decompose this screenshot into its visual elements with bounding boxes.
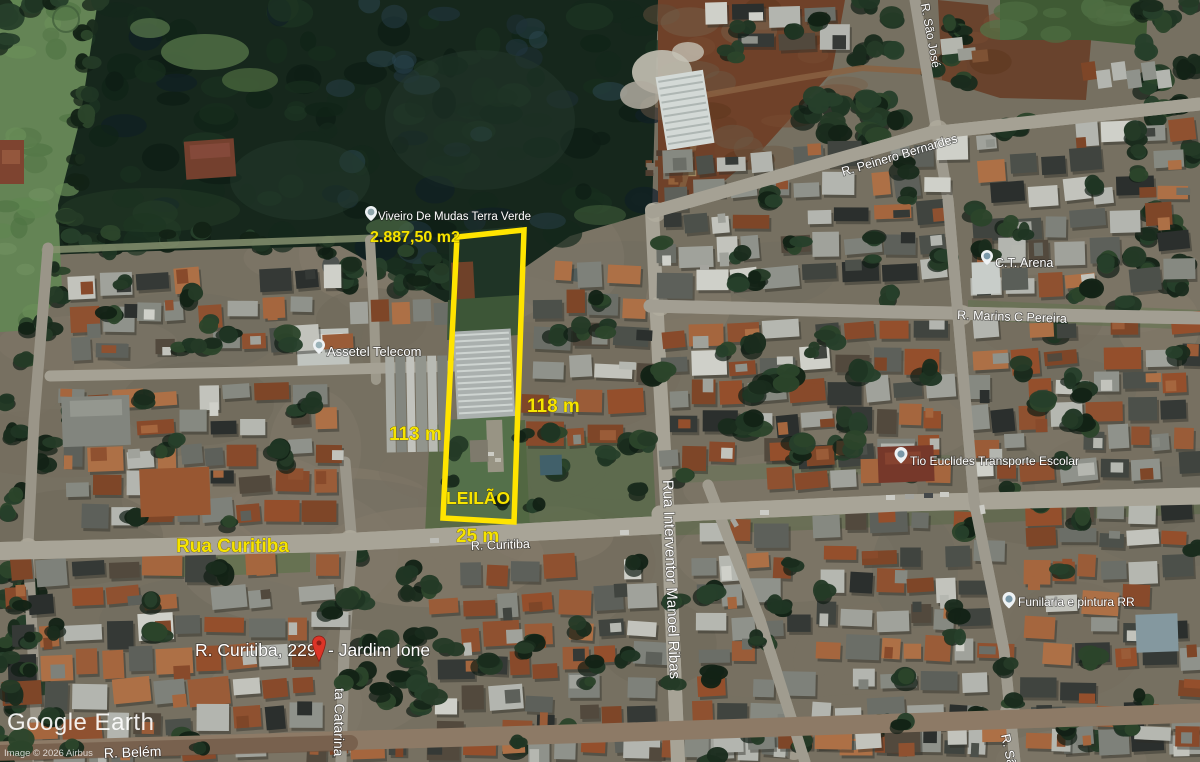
svg-text:118 m: 118 m [527,396,580,417]
svg-text:R. Belém: R. Belém [104,743,162,761]
svg-text:113 m: 113 m [389,424,442,445]
svg-text:ta Catarina: ta Catarina [331,688,348,757]
svg-text:Viveiro De Mudas Terra Verde: Viveiro De Mudas Terra Verde [378,211,531,223]
svg-text:- Jardim Ione: - Jardim Ione [328,640,430,660]
svg-text:R. Curitiba: R. Curitiba [471,537,531,553]
svg-text:Rua Curitiba: Rua Curitiba [176,536,289,557]
svg-text:LEILÃO: LEILÃO [446,487,510,508]
svg-text:Image © 2026 Airbus: Image © 2026 Airbus [4,748,93,759]
svg-text:Assetel Telecom: Assetel Telecom [327,344,421,359]
svg-text:Funilaria e pintura RR: Funilaria e pintura RR [1018,595,1135,609]
svg-text:Tio Euclides Transporte Escola: Tio Euclides Transporte Escolar [910,454,1079,468]
svg-text:2.887,50 m2: 2.887,50 m2 [370,229,460,246]
svg-text:R. Curitiba, 229: R. Curitiba, 229 [195,640,317,660]
svg-text:C.T. Arena: C.T. Arena [995,256,1053,270]
svg-text:Google Earth: Google Earth [7,709,154,736]
